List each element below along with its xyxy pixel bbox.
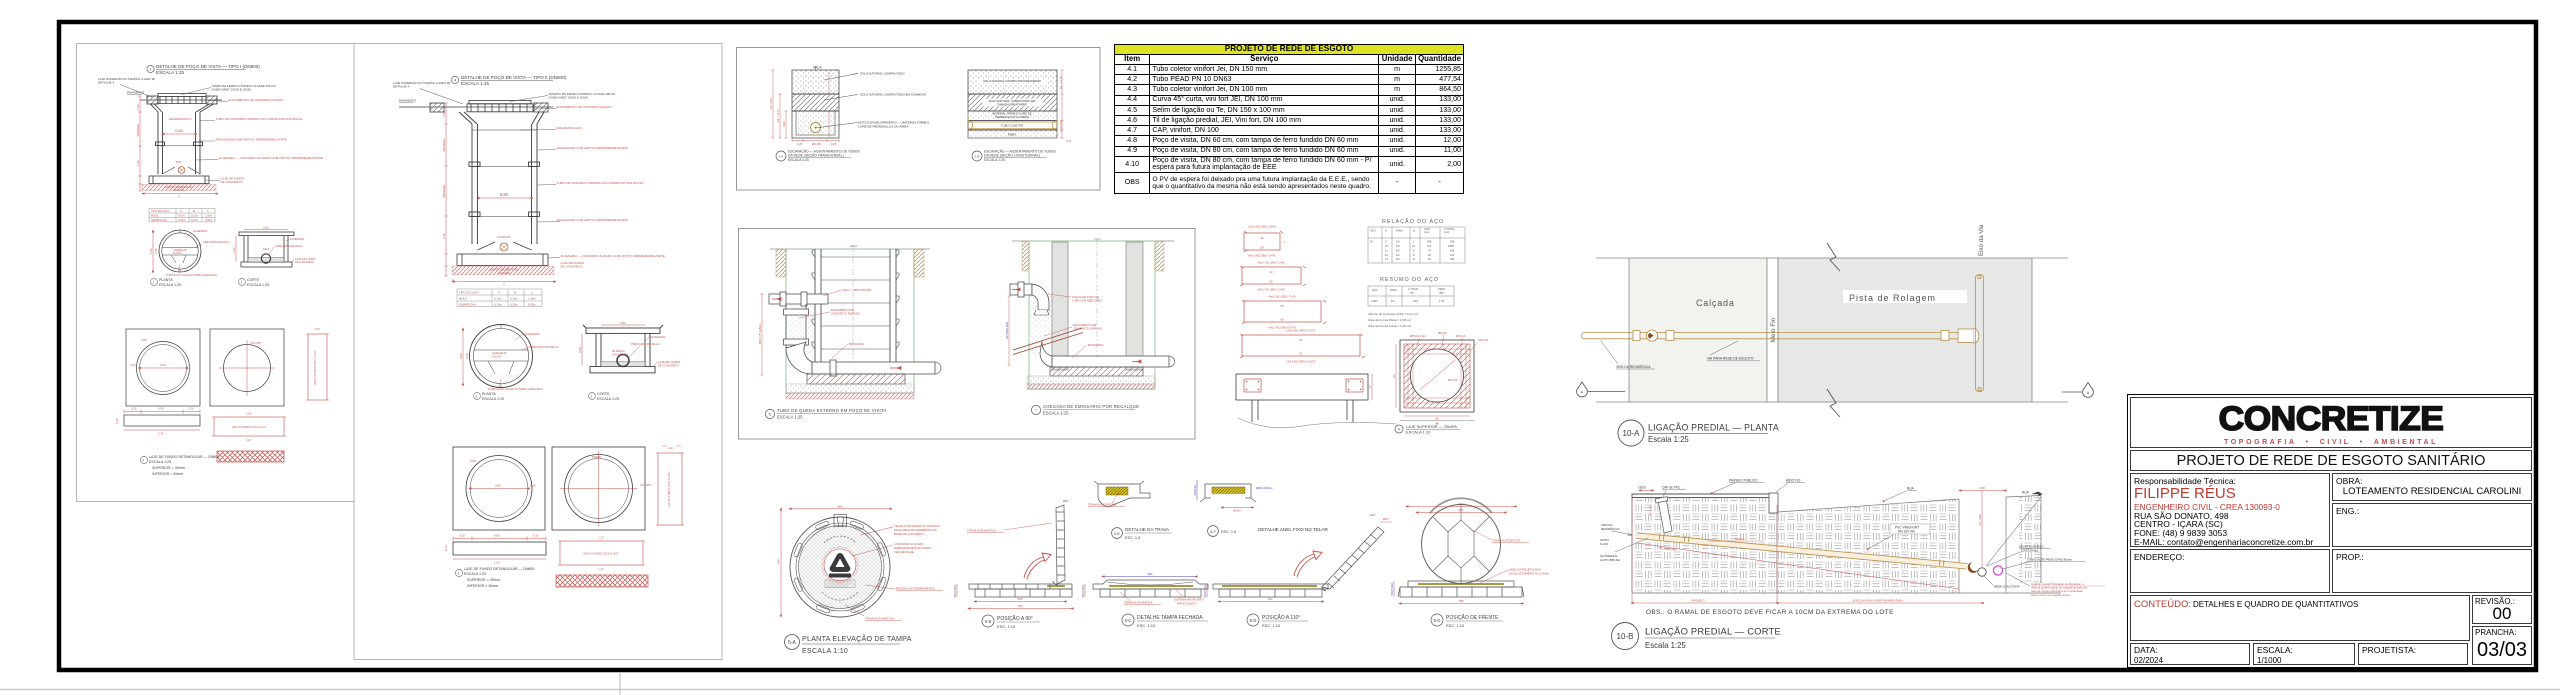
svg-text:MOLE: MOLE — [459, 296, 467, 300]
svg-text:Q: Q — [1413, 229, 1415, 233]
svg-text:0,08: 0,08 — [470, 459, 476, 463]
svg-text:0,15: 0,15 — [154, 248, 158, 254]
svg-text:8,0: 8,0 — [1391, 299, 1395, 303]
svg-text:ARGAMASSA COM ADITIVO IMPERMEA: ARGAMASSA COM ADITIVO IMPERMEABILIZANTE — [557, 218, 628, 222]
svg-text:PLANTA: PLANTA — [482, 392, 496, 396]
svg-text:758: 758 — [1018, 604, 1023, 608]
svg-text:PRÉ-FURO DN100mm: PRÉ-FURO DN100mm — [631, 341, 660, 346]
svg-text:Var. = 0,70: Var. = 0,70 — [776, 109, 780, 122]
svg-text:336: 336 — [1450, 257, 1455, 261]
svg-text:0,80: 0,80 — [620, 321, 626, 325]
svg-text:0,25: 0,25 — [797, 142, 803, 146]
svg-text:600: 600 — [1018, 597, 1023, 601]
svg-text:1,00: 1,00 — [494, 561, 500, 565]
svg-text:Ø25: Ø25 — [1063, 499, 1068, 503]
svg-text:DN 100 mm: DN 100 mm — [1898, 530, 1915, 534]
svg-text:PAVIMENTO: PAVIMENTO — [399, 99, 417, 103]
svg-text:ESCALA 1:10: ESCALA 1:10 — [802, 648, 848, 655]
svg-text:ESCALA 1:25: ESCALA 1:25 — [247, 283, 269, 287]
svg-text:1,27: 1,27 — [598, 536, 604, 540]
svg-text:TELA — OBSTRUÇÃO: TELA — OBSTRUÇÃO — [842, 287, 872, 292]
svg-text:ALVENARIA: ALVENARIA — [524, 332, 540, 336]
svg-text:TUBO COLETOR: TUBO COLETOR — [1001, 124, 1023, 128]
svg-text:Ø8 N12: Ø8 N12 — [1456, 334, 1466, 338]
svg-text:A: A — [1581, 389, 1584, 394]
svg-text:8: 8 — [1413, 248, 1415, 252]
svg-text:DETALHE TAMPA FECHADA: DETALHE TAMPA FECHADA — [1137, 615, 1203, 621]
svg-text:600: 600 — [1459, 508, 1464, 512]
svg-text:100X100mm: 100X100mm — [2021, 548, 2039, 552]
svg-text:0,15m: 0,15m — [191, 214, 198, 218]
svg-text:INFERIOR = 40mm: INFERIOR = 40mm — [152, 472, 183, 476]
svg-text:(kg): (kg) — [1439, 290, 1444, 294]
svg-text:8: 8 — [1413, 253, 1415, 257]
svg-text:7: 7 — [1035, 409, 1037, 413]
svg-text:17: 17 — [1368, 385, 1372, 389]
svg-text:TELA: TELA — [263, 247, 270, 251]
svg-text:LAJE SUPERIOR — TAMPA: LAJE SUPERIOR — TAMPA — [1406, 424, 1457, 429]
svg-text:SEM/ROCHA: SEM/ROCHA — [151, 218, 167, 222]
svg-text:DETALHE DA TRAVA: DETALHE DA TRAVA — [1125, 527, 1170, 532]
svg-text:SOLO NATURAL COMPACTADO: SOLO NATURAL COMPACTADO — [860, 71, 905, 75]
svg-text:(4x)3 N10 Ø8.0 C=157: (4x)3 N10 Ø8.0 C=157 — [1286, 329, 1316, 333]
svg-text:8,0: 8,0 — [1396, 244, 1400, 248]
svg-text:0,50m: 0,50m — [205, 218, 212, 222]
svg-text:DIAM: DIAM — [1390, 288, 1396, 292]
svg-text:A: A — [2087, 390, 2090, 395]
svg-text:N 100: N 100 — [1600, 542, 1608, 546]
svg-text:COL 98?: COL 98? — [250, 341, 262, 345]
svg-text:Área de Forma Curva = 0,32 m2: Área de Forma Curva = 0,32 m2 — [1368, 324, 1411, 328]
svg-text:7: 7 — [1284, 240, 1286, 244]
svg-text:0.60: 0.60 — [175, 128, 184, 133]
svg-text:TRAVA AUTOMÁTICA: TRAVA AUTOMÁTICA — [967, 529, 996, 533]
svg-text:CAP de PVC: CAP de PVC — [1662, 485, 1681, 489]
svg-text:min. 2,00: min. 2,00 — [769, 98, 773, 110]
svg-text:DETALHE 4: DETALHE 4 — [98, 81, 114, 85]
svg-text:TUBO DE CONCRETO ARMADO PA-2 D: TUBO DE CONCRETO ARMADO PA-2 DN800 PONTA… — [557, 181, 644, 185]
svg-text:Ø25: Ø25 — [1383, 517, 1388, 521]
svg-text:VARIAVEL: VARIAVEL — [442, 138, 446, 152]
svg-text:MEIO FIO: MEIO FIO — [1786, 478, 1801, 482]
svg-text:43: 43 — [1269, 270, 1273, 274]
svg-text:5-E: 5-E — [1114, 532, 1120, 536]
svg-text:0,10m: 0,10m — [178, 218, 185, 222]
svg-text:assim como na projeção acima.: assim como na projeção acima. — [2031, 593, 2071, 597]
svg-text:0,60: 0,60 — [782, 121, 786, 127]
svg-text:FLUXO: FLUXO — [173, 251, 182, 255]
svg-text:150,8 MAX.: 150,8 MAX. — [1390, 582, 1394, 596]
svg-text:CORTE: CORTE — [597, 392, 610, 396]
svg-text:0,60: 0,60 — [232, 247, 236, 253]
svg-text:ESCALA 1:25: ESCALA 1:25 — [984, 158, 1005, 162]
svg-text:8,0: 8,0 — [1396, 257, 1400, 261]
svg-text:28: 28 — [1260, 236, 1264, 240]
svg-text:C: C — [178, 194, 181, 198]
svg-text:28: 28 — [1260, 246, 1264, 250]
svg-text:0,10m: 0,10m — [178, 214, 185, 218]
svg-text:5-D: 5-D — [1250, 618, 1257, 623]
svg-text:ESCALA 1:25: ESCALA 1:25 — [156, 70, 185, 75]
svg-text:50: 50 — [1370, 240, 1373, 244]
svg-text:(4x)1 N13 Ø8.0 C=42: (4x)1 N13 Ø8.0 C=42 — [1248, 254, 1276, 258]
svg-text:RELAÇÃO DO AÇO: RELAÇÃO DO AÇO — [1382, 218, 1444, 225]
svg-text:4: 4 — [457, 571, 459, 575]
svg-text:RESUMO DO AÇO: RESUMO DO AÇO — [1380, 277, 1439, 283]
svg-text:2: 2 — [476, 394, 478, 398]
svg-text:min. 0,80: min. 0,80 — [1978, 514, 1982, 526]
svg-text:(cm): (cm) — [1424, 230, 1429, 234]
svg-text:DN800: DN800 — [592, 455, 601, 459]
svg-text:ARGAMASSA COM ADITIVO IMPERMEA: ARGAMASSA COM ADITIVO IMPERMEABILIZANTE — [216, 138, 287, 142]
svg-text:EIXO DA RUA A SER PAVIMENTADA: EIXO DA RUA A SER PAVIMENTADA — [1853, 598, 1903, 602]
svg-text:4: 4 — [454, 78, 457, 83]
svg-text:472: 472 — [1450, 253, 1455, 257]
svg-text:ESCALA 1:10: ESCALA 1:10 — [1406, 430, 1431, 435]
svg-text:0,20: 0,20 — [136, 104, 140, 110]
svg-text:TRAVA AUTOMÁTICA: TRAVA AUTOMÁTICA — [1088, 503, 1117, 507]
svg-text:0,12: 0,12 — [444, 545, 448, 551]
svg-text:ESCALA 1:25: ESCALA 1:25 — [597, 397, 619, 401]
svg-text:1,00: 1,00 — [314, 327, 320, 331]
svg-text:758: 758 — [1459, 599, 1464, 603]
svg-text:0,10: 0,10 — [533, 534, 539, 538]
svg-text:0,10: 0,10 — [188, 407, 194, 411]
svg-text:42: 42 — [1428, 257, 1431, 261]
svg-text:1,07: 1,07 — [246, 438, 252, 442]
svg-text:PRÉ-FURO DN100mm: PRÉ-FURO DN100mm — [276, 243, 303, 248]
svg-text:0,60: 0,60 — [160, 363, 166, 367]
svg-text:INFERIOR = 40mm: INFERIOR = 40mm — [467, 584, 498, 588]
svg-text:150,8 MAX.: 150,8 MAX. — [953, 584, 957, 598]
svg-text:AREIA: AREIA — [1008, 133, 1017, 137]
svg-text:0,10: 0,10 — [115, 418, 119, 424]
svg-text:ALVENARIA: ALVENARIA — [290, 237, 305, 241]
svg-text:10-A: 10-A — [1623, 429, 1641, 438]
svg-text:0,15m: 0,15m — [191, 218, 198, 222]
svg-text:CONCRETO SIMPLES: CONCRETO SIMPLES — [1073, 327, 1102, 331]
svg-text:3: 3 — [241, 280, 243, 284]
svg-text:VALA: VALA — [813, 66, 822, 70]
svg-text:PLANTA ELEVAÇÃO DE TAMPA: PLANTA ELEVAÇÃO DE TAMPA — [802, 634, 912, 643]
svg-text:496: 496 — [1450, 240, 1455, 244]
svg-text:DE CONCRETO: DE CONCRETO — [221, 180, 244, 184]
svg-text:5-F: 5-F — [1210, 530, 1216, 534]
svg-text:640: 640 — [1459, 502, 1464, 506]
svg-text:B: B — [514, 290, 516, 294]
svg-text:608: 608 — [1450, 248, 1455, 252]
svg-text:0,80: 0,80 — [1979, 486, 1985, 490]
svg-text:6: 6 — [769, 413, 771, 417]
svg-text:RESIDÊNCIA: RESIDÊNCIA — [1601, 526, 1619, 531]
svg-text:Var. = 0,70: Var. = 0,70 — [1059, 76, 1063, 89]
svg-text:DA REDE (SEÇÃO LONGITUDINAL): DA REDE (SEÇÃO LONGITUDINAL) — [984, 153, 1040, 158]
svg-text:CA50: CA50 — [1371, 299, 1378, 303]
svg-text:OU ELASTOMERO OU USINA: OU ELASTOMERO OU USINA — [1509, 571, 1549, 575]
svg-text:80mm: 80mm — [1233, 509, 1242, 513]
svg-text:1-B: 1-B — [975, 154, 980, 158]
svg-text:1-A: 1-A — [779, 154, 784, 158]
svg-text:C: C — [207, 209, 209, 213]
svg-text:RELEVO ANTIDERRAPANTE: RELEVO ANTIDERRAPANTE — [896, 587, 935, 591]
svg-text:(20) N°4 DN63 C/15 C=167: (20) N°4 DN63 C/15 C=167 — [583, 552, 619, 556]
svg-text:0,10m: 0,10m — [494, 296, 502, 300]
svg-text:0,60: 0,60 — [149, 248, 153, 254]
svg-text:LASTRO DE BRITA N/A: LASTRO DE BRITA N/A — [490, 268, 519, 272]
svg-text:ESCALA 1:25: ESCALA 1:25 — [788, 158, 809, 162]
svg-text:MIN 2,75 (VAR.): MIN 2,75 (VAR.) — [758, 324, 762, 344]
svg-text:5-B: 5-B — [985, 619, 992, 624]
svg-text:ALVENARIA — CONCRETO ALISADO C: ALVENARIA — CONCRETO ALISADO COM ADITIVO… — [561, 254, 665, 258]
svg-text:REDE COLETORA: REDE COLETORA — [1994, 584, 2020, 588]
svg-text:ARGAMASSA COM ADITIVO IMPERMEA: ARGAMASSA COM ADITIVO IMPERMEABILIZANTE — [557, 146, 628, 150]
svg-text:Pista de Rolagem: Pista de Rolagem — [1849, 293, 1936, 303]
svg-text:VARIAVEL: VARIAVEL — [442, 184, 446, 198]
svg-text:ESCALA 1:25: ESCALA 1:25 — [149, 460, 171, 464]
svg-text:(4x)1 N11 Ø8.0 C=76: (4x)1 N11 Ø8.0 C=76 — [1268, 295, 1296, 299]
svg-text:DE CONCRETO: DE CONCRETO — [658, 364, 679, 368]
svg-text:43: 43 — [1269, 280, 1273, 284]
svg-text:8: 8 — [1413, 257, 1415, 261]
svg-text:VARIAVEL: VARIAVEL — [136, 123, 140, 137]
svg-text:13: 13 — [1385, 257, 1388, 261]
svg-text:BASE DE CONCRETO: BASE DE CONCRETO — [894, 532, 925, 536]
svg-text:TIPO DE SOLO: TIPO DE SOLO — [459, 290, 480, 294]
svg-text:0,10: 0,10 — [530, 484, 536, 488]
svg-text:44,8: 44,8 — [1413, 299, 1419, 303]
svg-text:SOLO NATURAL COMPACTADO EM CAM: SOLO NATURAL COMPACTADO EM CAMADAS — [860, 92, 926, 96]
svg-text:CHEGADA DE EMISSÁRIO POR RECAL: CHEGADA DE EMISSÁRIO POR RECALQUE — [1043, 404, 1139, 409]
svg-text:VEM DA RESIDÊNCIA: VEM DA RESIDÊNCIA — [1616, 364, 1651, 369]
svg-text:DETALHE 4: DETALHE 4 — [393, 85, 409, 89]
svg-text:Ø0,150: Ø0,150 — [812, 142, 821, 146]
svg-text:ESC. 1:10: ESC. 1:10 — [997, 624, 1016, 629]
svg-text:TUBO DE QUEDA EXTERNO EM POÇO: TUBO DE QUEDA EXTERNO EM POÇO DE VISITA — [777, 408, 887, 413]
svg-text:C: C — [531, 290, 533, 294]
svg-text:Calçada: Calçada — [1696, 298, 1735, 308]
svg-text:150,8 MAX.: 150,8 MAX. — [1203, 584, 1207, 598]
svg-text:DETALHE DE POÇO DE VISTA — TIP: DETALHE DE POÇO DE VISTA — TIPO I (DN600… — [156, 64, 260, 69]
svg-text:ESCALA 1:25: ESCALA 1:25 — [464, 572, 486, 576]
svg-text:10-B: 10-B — [1617, 632, 1634, 641]
svg-text:600: 600 — [1268, 597, 1273, 601]
svg-text:Ø8 N13 C/42: Ø8 N13 C/42 — [1410, 334, 1426, 338]
svg-text:CANALETA: CANALETA — [497, 235, 511, 239]
svg-text:(4x)1 N13 Ø8.0 C=42: (4x)1 N13 Ø8.0 C=42 — [1248, 225, 1276, 229]
svg-text:TUBO DAS MEDIÇÕES: TUBO DAS MEDIÇÕES — [1072, 298, 1102, 303]
svg-text:10: 10 — [1385, 244, 1388, 248]
svg-text:0,80: 0,80 — [495, 484, 501, 488]
svg-text:Volume de Concreto (C40) = 0,1: Volume de Concreto (C40) = 0,17 m3 — [1368, 312, 1418, 316]
svg-text:ESCALA 1:25: ESCALA 1:25 — [482, 397, 504, 401]
svg-text:(4x)1 N12 Ø8.0 C=59: (4x)1 N12 Ø8.0 C=59 — [1257, 288, 1285, 292]
svg-text:(4x)1 N12 Ø8.0 C=59: (4x)1 N12 Ø8.0 C=59 — [1257, 261, 1285, 265]
svg-text:2: 2 — [153, 280, 155, 284]
svg-text:TUBULAÇÃO PEAD DN63 80mm: TUBULAÇÃO PEAD DN63 80mm — [2027, 556, 2073, 561]
svg-text:0,15 0,60: 0,15 0,60 — [1059, 120, 1063, 132]
svg-text:Ø8 N10: Ø8 N10 — [1479, 338, 1489, 342]
svg-text:BANQUETA: BANQUETA — [1088, 343, 1103, 347]
svg-text:0,20m: 0,20m — [510, 302, 518, 306]
svg-text:0,80: 0,80 — [494, 534, 500, 538]
svg-text:0,50m: 0,50m — [528, 302, 536, 306]
svg-text:4: 4 — [1398, 427, 1400, 431]
svg-text:RUA: RUA — [1907, 486, 1915, 490]
svg-text:(20) N°4 DN63 C/15 C=147: (20) N°4 DN63 C/15 C=147 — [313, 350, 317, 385]
svg-text:ARTICULADO: ARTICULADO — [1177, 601, 1196, 605]
svg-text:TIPO DE SOLO: TIPO DE SOLO — [151, 209, 169, 213]
svg-text:Escala 1:25: Escala 1:25 — [1648, 435, 1689, 444]
svg-text:0,90: 0,90 — [158, 407, 164, 411]
svg-text:RUA: RUA — [2022, 490, 2030, 494]
svg-text:0,15m: 0,15m — [510, 296, 518, 300]
svg-text:12: 12 — [1385, 253, 1388, 257]
svg-text:0,80: 0,80 — [459, 353, 463, 359]
svg-text:VAI PARA REDE DE ESGOTO: VAI PARA REDE DE ESGOTO — [1707, 357, 1754, 361]
svg-text:80: 80 — [1435, 417, 1439, 421]
svg-text:SEM/ROCHA: SEM/ROCHA — [459, 302, 476, 306]
svg-text:TRAVA AUTOMÁTICA: TRAVA AUTOMÁTICA — [865, 617, 894, 621]
svg-text:Ø8 N11: Ø8 N11 — [1438, 331, 1448, 335]
svg-text:ESCALA 1:25: ESCALA 1:25 — [159, 283, 181, 287]
svg-text:N: N — [1385, 229, 1387, 233]
svg-text:PASSEIO PÚBLICO: PASSEIO PÚBLICO — [1729, 477, 1758, 482]
svg-text:3: 3 — [591, 394, 593, 398]
svg-text:Ø150mm: Ø150mm — [1193, 485, 1197, 496]
svg-text:8,0: 8,0 — [1396, 240, 1400, 244]
svg-text:0,10: 0,10 — [1066, 139, 1072, 143]
svg-text:(4x)3 N10 Ø8.0 C=157: (4x)3 N10 Ø8.0 C=157 — [1286, 360, 1316, 364]
svg-text:LAJE DE FUNDO RETANGULAR — DN8: LAJE DE FUNDO RETANGULAR — DN800 — [464, 567, 534, 571]
svg-text:PASSEIO: PASSEIO — [1692, 598, 1706, 602]
svg-text:SOLO NATURAL COMPACTADO/REATER: SOLO NATURAL COMPACTADO/REATERRO — [983, 79, 1042, 83]
svg-text:FLUXO: FLUXO — [492, 354, 502, 358]
svg-text:50%: 50% — [176, 160, 182, 164]
svg-text:150,8 MAX.: 150,8 MAX. — [1081, 584, 1085, 598]
svg-text:SUPERIOR = 30mm: SUPERIOR = 30mm — [467, 578, 500, 582]
svg-text:ESC. 1:10: ESC. 1:10 — [1262, 623, 1281, 628]
svg-text:LIVRE DE PEDREGULOS OU AREIA: LIVRE DE PEDREGULOS OU AREIA — [858, 124, 908, 128]
svg-text:DIAM: DIAM — [1396, 229, 1402, 233]
svg-text:OBS.: O RAMAL DE ESGOTO D: OBS.: O RAMAL DE ESGOTO DEVE FICAR A 10C… — [1646, 609, 1894, 616]
svg-text:1,20: 1,20 — [667, 446, 673, 450]
svg-text:DE CONCRETO: DE CONCRETO — [295, 260, 314, 264]
svg-text:PESO: PESO — [1438, 287, 1445, 291]
svg-text:ALTURA VAR.: ALTURA VAR. — [1005, 321, 1009, 339]
svg-text:ESC. 1:10: ESC. 1:10 — [1137, 623, 1156, 628]
svg-text:5-G: 5-G — [1434, 618, 1441, 623]
svg-text:CORTE: CORTE — [247, 278, 260, 282]
svg-text:1: 1 — [149, 67, 152, 72]
svg-text:59: 59 — [1428, 253, 1431, 257]
svg-text:PEDREGULOS OU AREIA: PEDREGULOS OU AREIA — [995, 115, 1029, 119]
svg-text:ESC. 1:10: ESC. 1:10 — [1446, 623, 1465, 628]
svg-text:POSIÇÃO DE FRENTE: POSIÇÃO DE FRENTE — [1446, 614, 1499, 621]
svg-text:0,10m: 0,10m — [494, 302, 502, 306]
svg-text:10cm: 10cm — [1638, 485, 1646, 489]
svg-text:POSIÇÃO A 90°: POSIÇÃO A 90° — [997, 615, 1033, 622]
svg-text:(20) N°4 DN63 C/15 C=147: (20) N°4 DN63 C/15 C=147 — [232, 425, 267, 429]
svg-text:LIGAÇÃO PREDIAL — PLANTA: LIGAÇÃO PREDIAL — PLANTA — [1648, 423, 1779, 433]
svg-text:CONCRETO SIMPLES: CONCRETO SIMPLES — [831, 312, 860, 316]
svg-text:Área de Forma Plana = 1,68 m2: Área de Forma Plana = 1,68 m2 — [1368, 318, 1411, 322]
svg-text:AÇO: AÇO — [1372, 288, 1378, 292]
svg-text:0,15: 0,15 — [136, 160, 140, 166]
svg-text:CAMADAS/REATERRO: CAMADAS/REATERRO — [997, 102, 1028, 106]
svg-text:(21) N°4 DN63 C/15 C=167: (21) N°4 DN63 C/15 C=167 — [667, 471, 671, 507]
svg-text:ENCHIMENTO DE CONCRETO MAGRO: ENCHIMENTO DE CONCRETO MAGRO — [229, 98, 285, 102]
svg-text:4: 4 — [142, 458, 144, 462]
svg-text:ALVENARIA — CONCRETO ALISADO C: ALVENARIA — CONCRETO ALISADO COM ADITIVO… — [219, 156, 323, 160]
svg-text:0,60: 0,60 — [263, 226, 269, 230]
svg-text:A: A — [498, 290, 500, 294]
svg-text:Eixo da Via: Eixo da Via — [1978, 224, 1985, 256]
svg-text:5-A: 5-A — [788, 640, 796, 646]
svg-text:110°: 110° — [1370, 513, 1375, 517]
svg-text:C: C — [503, 283, 506, 287]
svg-text:LIGAÇÃO PREDIAL — CORTE: LIGAÇÃO PREDIAL — CORTE — [1645, 626, 1781, 637]
svg-text:TUBO DE CONCRETO ARMADO PA-2 D: TUBO DE CONCRETO ARMADO PA-2 DN600 PONTA… — [216, 117, 303, 121]
svg-text:0,10: 0,10 — [131, 407, 137, 411]
svg-text:TRAVA AUTOMÁTICA: TRAVA AUTOMÁTICA — [1124, 601, 1153, 605]
svg-text:ESCALA 1:25: ESCALA 1:25 — [461, 81, 490, 86]
svg-text:LAJE DE FUNDO RETANGULAR — DN6: LAJE DE FUNDO RETANGULAR — DN600 — [149, 455, 219, 459]
svg-text:ARGAMASSA AÇO: ARGAMASSA AÇO — [169, 117, 192, 121]
svg-text:91: 91 — [1299, 352, 1303, 356]
svg-text:Escala 1:25: Escala 1:25 — [1645, 641, 1686, 650]
svg-text:0,15: 0,15 — [442, 233, 446, 239]
svg-text:1,10: 1,10 — [158, 432, 164, 436]
svg-text:POSIÇÃO A 110°: POSIÇÃO A 110° — [1262, 614, 1300, 621]
svg-text:A: A — [180, 209, 182, 213]
svg-text:0,20: 0,20 — [130, 363, 136, 367]
svg-text:PLANTA: PLANTA — [159, 278, 173, 282]
svg-text:FUROAÇÃO CALHA PV DN80 CHEGADA: FUROAÇÃO CALHA PV DN80 CHEGADAS — [166, 272, 217, 277]
svg-text:AÇO: AÇO — [1370, 229, 1376, 233]
svg-text:COL 98?: COL 98? — [640, 483, 652, 487]
svg-text:1,07: 1,07 — [246, 412, 252, 416]
svg-text:DA REDE (SEÇÃO TRANSVERSAL): DA REDE (SEÇÃO TRANSVERSAL) — [788, 153, 844, 158]
svg-text:PRÉ-FURO DN100mm: PRÉ-FURO DN100mm — [203, 239, 230, 244]
svg-text:80: 80 — [1392, 374, 1396, 378]
svg-text:DN600-ABNT 10160 E 10160: DN600-ABNT 10160 E 10160 — [549, 96, 589, 100]
svg-text:ALVENARIA: ALVENARIA — [650, 335, 666, 339]
svg-text:91: 91 — [1299, 338, 1303, 342]
svg-text:0,20: 0,20 — [442, 111, 446, 117]
svg-text:RAMAL: RAMAL — [1735, 537, 1745, 541]
svg-text:0,08: 0,08 — [141, 338, 147, 342]
svg-text:ESCALA 1:25: ESCALA 1:25 — [1043, 411, 1069, 416]
svg-text:60: 60 — [1280, 304, 1284, 308]
svg-text:ESC. 1:5: ESC. 1:5 — [1125, 536, 1140, 540]
svg-text:0,25: 0,25 — [831, 142, 837, 146]
svg-text:ESC. 1:5: ESC. 1:5 — [1221, 530, 1236, 534]
svg-text:MOLE: MOLE — [151, 214, 159, 218]
svg-text:0,20: 0,20 — [465, 353, 469, 359]
svg-text:Ø25 E 106mm: Ø25 E 106mm — [1256, 486, 1273, 490]
svg-text:11: 11 — [1385, 248, 1388, 252]
svg-text:600: 600 — [1148, 572, 1153, 576]
svg-text:DE CONCRETO: DE CONCRETO — [561, 264, 584, 268]
svg-text:(m): (m) — [1410, 290, 1414, 294]
svg-text:0,80: 0,80 — [578, 347, 582, 353]
svg-text:FUROAÇÃO CALHA PV DN80 CHEGADA: FUROAÇÃO CALHA PV DN80 CHEGADAS — [488, 386, 543, 391]
svg-text:9: 9 — [1385, 240, 1387, 244]
svg-text:VER DETALHE: VER DETALHE — [894, 550, 914, 554]
svg-text:2568: 2568 — [1448, 244, 1454, 248]
svg-text:DETALHE DE POÇO DE VISTA — TIP: DETALHE DE POÇO DE VISTA — TIPO II (DN80… — [461, 75, 567, 80]
svg-text:BANQUETA: BANQUETA — [849, 342, 864, 346]
